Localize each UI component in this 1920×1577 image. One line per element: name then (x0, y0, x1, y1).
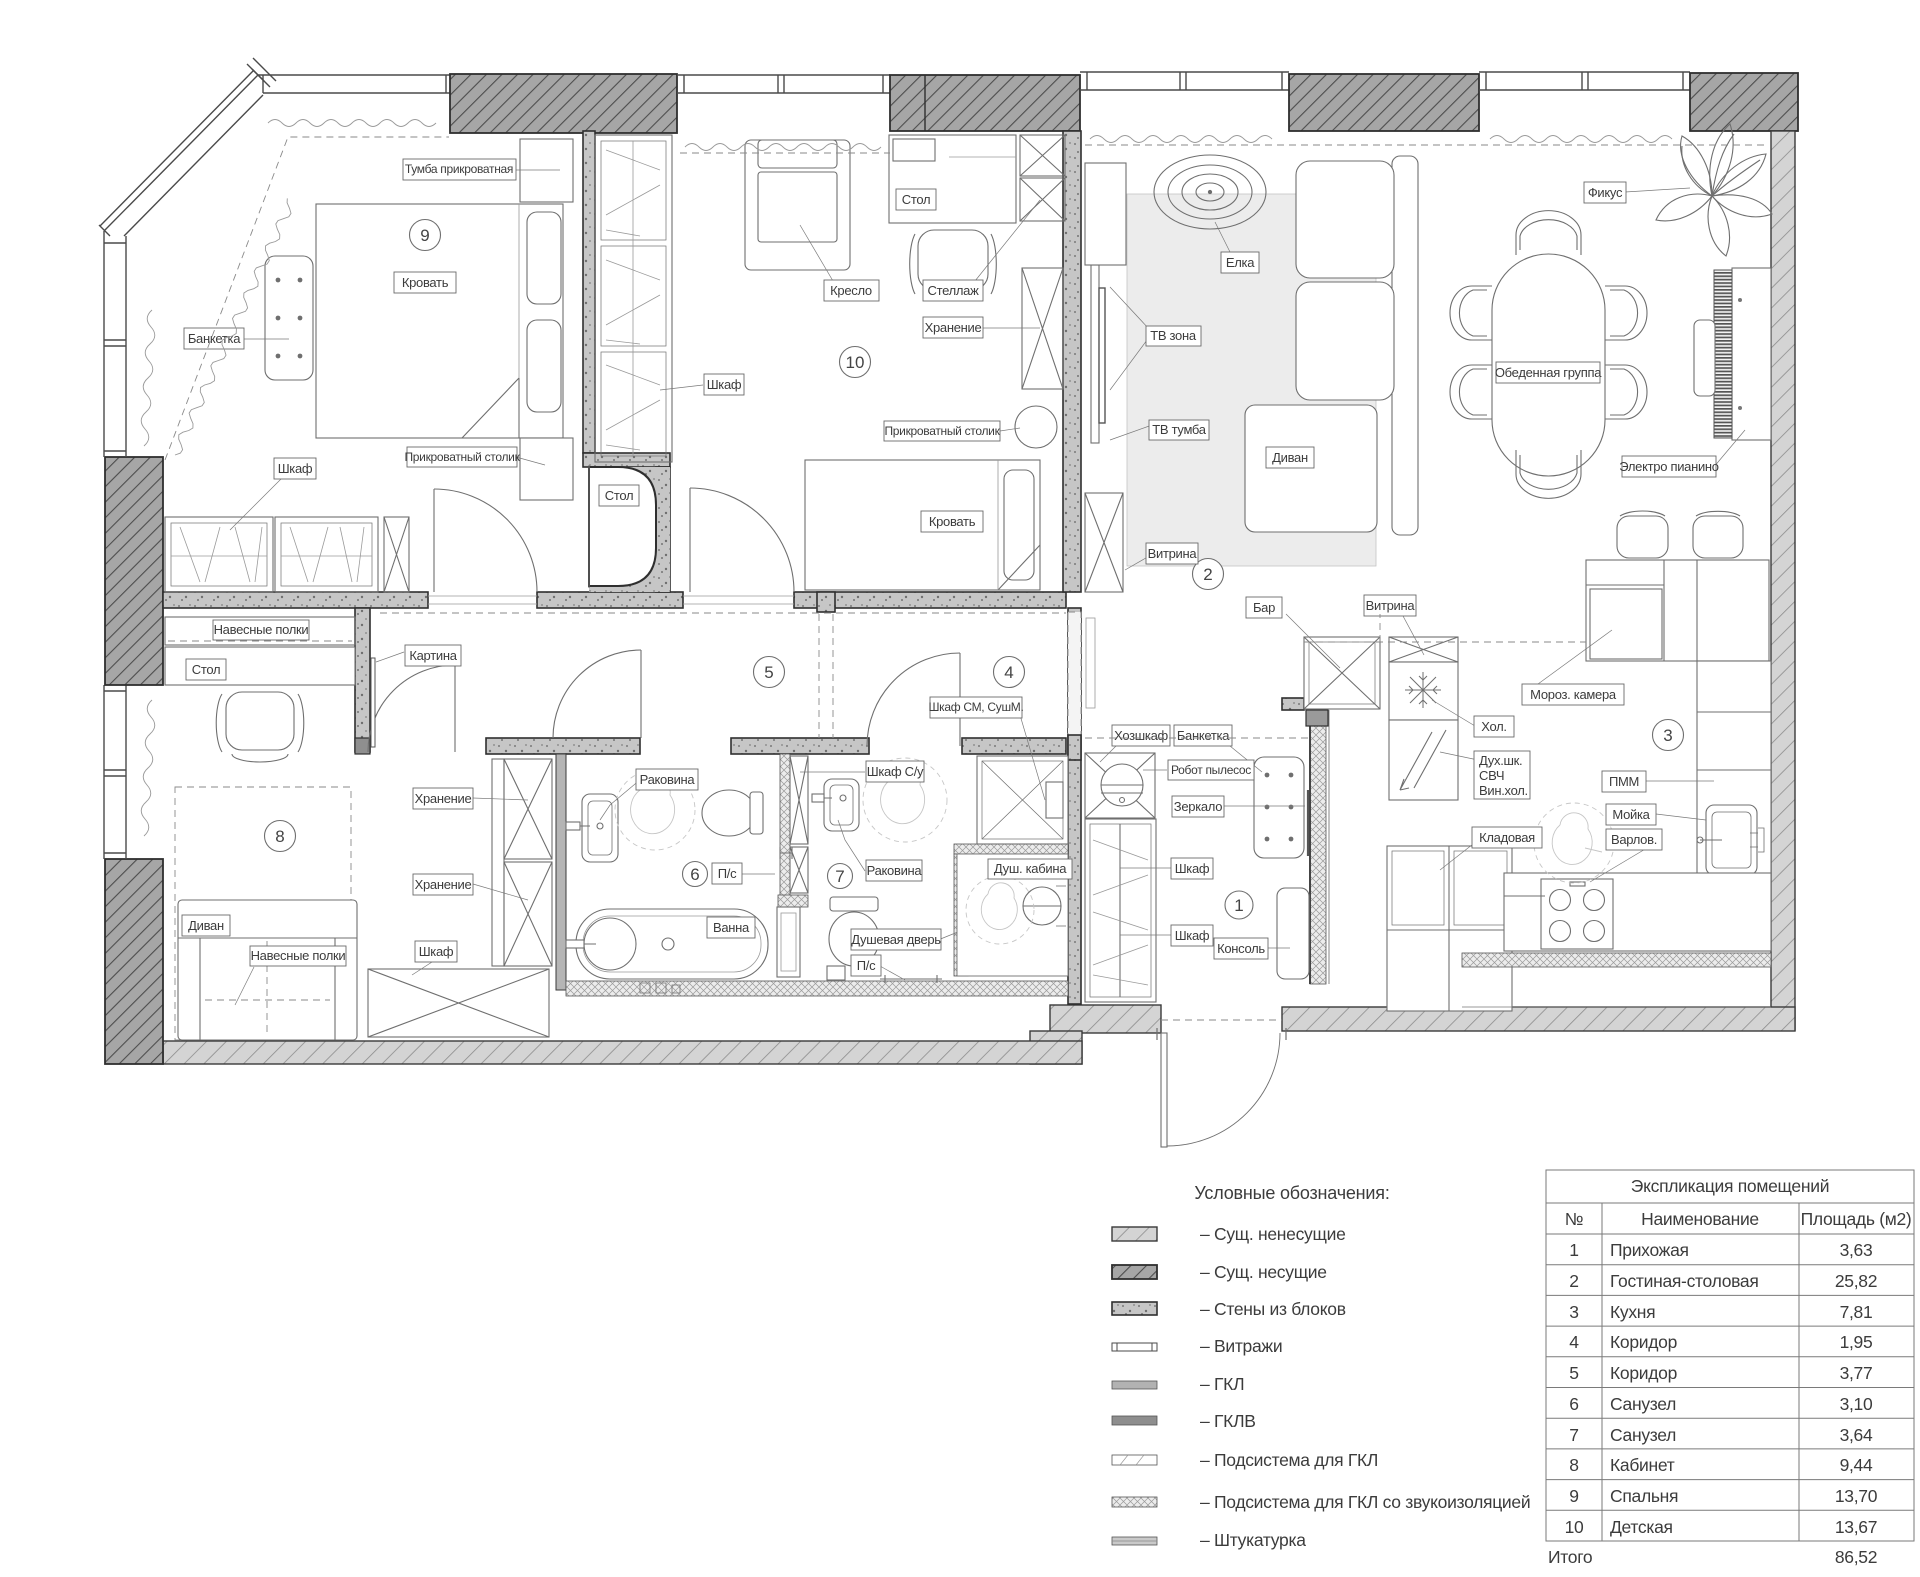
svg-text:Шкаф: Шкаф (419, 944, 454, 959)
svg-text:9: 9 (1569, 1486, 1578, 1506)
svg-text:Душевая дверь: Душевая дверь (851, 932, 941, 947)
svg-text:– Сущ. ненесущие: – Сущ. ненесущие (1200, 1224, 1346, 1244)
svg-text:– Стены из блоков: – Стены из блоков (1200, 1299, 1346, 1319)
svg-text:7: 7 (1569, 1425, 1578, 1445)
svg-text:2: 2 (1569, 1271, 1578, 1291)
svg-text:Шкаф СМ, СушМ.: Шкаф СМ, СушМ. (928, 700, 1023, 714)
svg-text:Витрина: Витрина (1148, 546, 1198, 561)
svg-text:3,10: 3,10 (1840, 1394, 1873, 1414)
svg-text:Кресло: Кресло (830, 283, 872, 298)
svg-text:Раковина: Раковина (867, 863, 923, 878)
svg-text:3,77: 3,77 (1840, 1363, 1873, 1383)
svg-text:Витрина: Витрина (1366, 598, 1416, 613)
svg-text:5: 5 (764, 663, 773, 682)
svg-text:Наименование: Наименование (1641, 1209, 1759, 1229)
svg-text:3: 3 (1663, 726, 1672, 745)
svg-text:Мороз. камера: Мороз. камера (1530, 687, 1617, 702)
svg-text:7: 7 (835, 867, 844, 886)
svg-text:СВЧ: СВЧ (1479, 768, 1504, 783)
svg-text:– ГКЛВ: – ГКЛВ (1200, 1411, 1256, 1431)
svg-text:Кабинет: Кабинет (1610, 1455, 1675, 1475)
svg-text:10: 10 (1565, 1517, 1584, 1537)
svg-text:9: 9 (420, 226, 429, 245)
svg-text:Санузел: Санузел (1610, 1394, 1676, 1414)
svg-text:Коридор: Коридор (1610, 1332, 1677, 1352)
svg-text:– ГКЛ: – ГКЛ (1200, 1374, 1244, 1394)
svg-text:3,64: 3,64 (1840, 1425, 1873, 1445)
svg-text:ПММ: ПММ (1609, 774, 1639, 789)
svg-text:Кладовая: Кладовая (1479, 830, 1535, 845)
svg-text:Банкетка: Банкетка (1177, 728, 1230, 743)
svg-text:Консоль: Консоль (1217, 941, 1265, 956)
svg-text:Диван: Диван (188, 918, 224, 933)
svg-text:9,44: 9,44 (1840, 1455, 1873, 1475)
svg-text:Прикроватный столик: Прикроватный столик (404, 450, 520, 464)
svg-text:3: 3 (1569, 1302, 1578, 1322)
svg-text:8: 8 (1569, 1455, 1578, 1475)
svg-text:Шкаф: Шкаф (278, 461, 313, 476)
svg-text:Электро пианино: Электро пианино (1619, 459, 1719, 474)
svg-text:– Витражи: – Витражи (1200, 1336, 1282, 1356)
svg-text:6: 6 (1569, 1394, 1578, 1414)
svg-text:Прихожая: Прихожая (1610, 1240, 1689, 1260)
svg-text:4: 4 (1004, 663, 1013, 682)
svg-text:Навесные полки: Навесные полки (251, 948, 346, 963)
svg-text:П/с: П/с (857, 958, 876, 973)
svg-text:Площадь (м2): Площадь (м2) (1801, 1209, 1912, 1229)
svg-text:Хол.: Хол. (1481, 719, 1506, 734)
svg-text:Банкетка: Банкетка (188, 331, 241, 346)
svg-text:10: 10 (846, 353, 865, 372)
svg-text:ТВ тумба: ТВ тумба (1152, 422, 1207, 437)
svg-text:2: 2 (1203, 565, 1212, 584)
svg-text:Робот пылесос: Робот пылесос (1171, 763, 1251, 777)
svg-text:Прикроватный столик: Прикроватный столик (884, 424, 1000, 438)
svg-text:4: 4 (1569, 1332, 1579, 1352)
svg-text:№: № (1565, 1209, 1583, 1229)
svg-text:1,95: 1,95 (1840, 1332, 1873, 1352)
svg-text:Шкаф С/у: Шкаф С/у (867, 764, 924, 779)
svg-text:Экспликация помещений: Экспликация помещений (1631, 1176, 1829, 1196)
svg-text:Раковина: Раковина (640, 772, 696, 787)
svg-text:1: 1 (1234, 896, 1243, 915)
svg-text:Зеркало: Зеркало (1174, 799, 1222, 814)
svg-text:Хозшкаф: Хозшкаф (1114, 728, 1168, 743)
svg-text:5: 5 (1569, 1363, 1578, 1383)
svg-text:Шкаф: Шкаф (1175, 861, 1210, 876)
svg-text:Итого: Итого (1548, 1547, 1592, 1567)
svg-text:Стол: Стол (605, 488, 634, 503)
svg-text:– Подсистема для ГКЛ: – Подсистема для ГКЛ (1200, 1450, 1378, 1470)
svg-text:Навесные полки: Навесные полки (214, 622, 309, 637)
svg-text:Дух.шк.: Дух.шк. (1479, 753, 1522, 768)
svg-text:25,82: 25,82 (1835, 1271, 1877, 1291)
svg-text:Кровать: Кровать (929, 514, 976, 529)
svg-text:Санузел: Санузел (1610, 1425, 1676, 1445)
svg-text:Стеллаж: Стеллаж (928, 283, 980, 298)
svg-text:П/с: П/с (718, 866, 737, 881)
svg-text:Ванна: Ванна (713, 920, 750, 935)
svg-text:Обеденная группа: Обеденная группа (1495, 365, 1602, 380)
svg-text:3,63: 3,63 (1840, 1240, 1873, 1260)
svg-text:Хранение: Хранение (415, 791, 472, 806)
svg-text:Диван: Диван (1272, 450, 1308, 465)
svg-text:– Штукатурка: – Штукатурка (1200, 1530, 1306, 1550)
svg-text:Елка: Елка (1226, 255, 1255, 270)
svg-text:Детская: Детская (1610, 1517, 1673, 1537)
svg-text:– Сущ. несущие: – Сущ. несущие (1200, 1262, 1327, 1282)
svg-text:Условные обозначения:: Условные обозначения: (1194, 1183, 1389, 1203)
svg-text:Тумба прикроватная: Тумба прикроватная (405, 162, 513, 176)
svg-text:7,81: 7,81 (1840, 1302, 1873, 1322)
svg-text:6: 6 (690, 865, 699, 884)
svg-text:1: 1 (1569, 1240, 1578, 1260)
svg-text:Шкаф: Шкаф (1175, 928, 1210, 943)
svg-text:Душ. кабина: Душ. кабина (994, 861, 1067, 876)
svg-text:Стол: Стол (192, 662, 221, 677)
svg-text:– Подсистема для ГКЛ со звуко: – Подсистема для ГКЛ со звукоизоляцией (1200, 1492, 1530, 1512)
svg-text:Кровать: Кровать (402, 275, 449, 290)
svg-text:Картина: Картина (409, 648, 457, 663)
svg-text:ТВ зона: ТВ зона (1150, 328, 1197, 343)
svg-text:Мойка: Мойка (1612, 807, 1650, 822)
svg-text:Вин.хол.: Вин.хол. (1479, 783, 1528, 798)
svg-text:Варлов.: Варлов. (1611, 832, 1657, 847)
svg-text:Фикус: Фикус (1588, 185, 1623, 200)
svg-text:13,67: 13,67 (1835, 1517, 1877, 1537)
svg-text:Бар: Бар (1253, 600, 1275, 615)
svg-text:Хранение: Хранение (415, 877, 472, 892)
svg-text:Хранение: Хранение (925, 320, 982, 335)
svg-text:13,70: 13,70 (1835, 1486, 1878, 1506)
svg-text:Коридор: Коридор (1610, 1363, 1677, 1383)
svg-text:Шкаф: Шкаф (707, 377, 742, 392)
svg-text:Гостиная-столовая: Гостиная-столовая (1610, 1271, 1759, 1291)
svg-text:8: 8 (275, 827, 284, 846)
svg-text:Спальня: Спальня (1610, 1486, 1678, 1506)
svg-text:86,52: 86,52 (1835, 1547, 1877, 1567)
svg-text:Кухня: Кухня (1610, 1302, 1655, 1322)
svg-text:Стол: Стол (902, 192, 931, 207)
